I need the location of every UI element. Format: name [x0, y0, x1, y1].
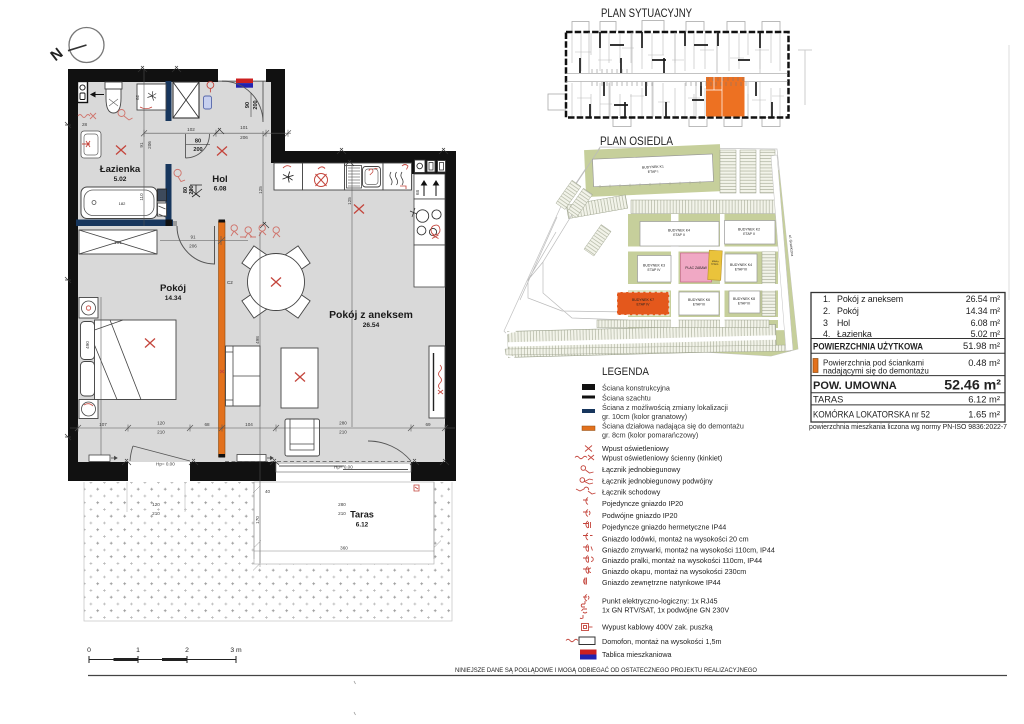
svg-text:Hol: Hol: [212, 174, 227, 185]
svg-text:PLAN OSIEDLA: PLAN OSIEDLA: [600, 134, 674, 148]
svg-text:1x GN RTV/SAT, 1x podwójne GN: 1x GN RTV/SAT, 1x podwójne GN 230V: [602, 606, 729, 615]
svg-text:0: 0: [87, 647, 91, 654]
svg-text:BUDYNEK K8: BUDYNEK K8: [733, 297, 755, 301]
svg-text:210: 210: [338, 511, 346, 516]
svg-text:182: 182: [119, 201, 126, 206]
svg-text:Wypust kablowy 400V zak. puszk: Wypust kablowy 400V zak. puszką: [602, 623, 713, 632]
svg-text:51.98 m²: 51.98 m²: [963, 340, 1000, 351]
svg-text:90: 90: [245, 102, 251, 108]
svg-text:ETAP I: ETAP I: [648, 170, 659, 174]
svg-text:TARAS: TARAS: [813, 395, 843, 405]
svg-text:Pojedyncze gniazdo hermetyczne: Pojedyncze gniazdo hermetyczne IP44: [602, 523, 726, 532]
svg-text:Gniazdo zmywarki, montaż na wy: Gniazdo zmywarki, montaż na wysokości 11…: [602, 546, 775, 555]
svg-text:ETAP IV: ETAP IV: [648, 268, 662, 272]
svg-text:125: 125: [258, 186, 263, 194]
svg-text:206: 206: [240, 135, 248, 140]
svg-text:120: 120: [157, 421, 165, 426]
svg-text:Tablica mieszkaniowa: Tablica mieszkaniowa: [602, 650, 672, 659]
svg-text:191: 191: [114, 240, 122, 245]
svg-text:Pojedyncze gniazdo IP20: Pojedyncze gniazdo IP20: [602, 499, 683, 508]
svg-text:210: 210: [157, 430, 165, 435]
svg-text:104: 104: [245, 422, 253, 427]
svg-text:91: 91: [139, 142, 144, 148]
svg-text:Wpust oświetleniowy ścienny (k: Wpust oświetleniowy ścienny (kinkiet): [602, 454, 722, 463]
svg-text:210: 210: [339, 430, 347, 435]
svg-text:BUDYNEK K7: BUDYNEK K7: [632, 298, 654, 302]
svg-text:206: 206: [147, 141, 152, 149]
svg-text:Domofon, montaż na wysokości 1: Domofon, montaż na wysokości 1,5m: [602, 637, 721, 646]
svg-text:1.65 m²: 1.65 m²: [968, 409, 1000, 420]
svg-text:125: 125: [347, 197, 352, 205]
svg-text:Hol: Hol: [837, 318, 850, 328]
svg-text:ETAP III: ETAP III: [735, 268, 748, 272]
svg-text:NINIEJSZE DANE SĄ POGLĄDOWE I: NINIEJSZE DANE SĄ POGLĄDOWE I MOGĄ ODBIE…: [455, 665, 757, 674]
svg-text:102: 102: [187, 127, 195, 132]
svg-text:POWIERZCHNIA UŻYTKOWA: POWIERZCHNIA UŻYTKOWA: [813, 342, 923, 353]
svg-text:200: 200: [193, 147, 202, 153]
svg-text:52.46 m²: 52.46 m²: [944, 378, 1001, 394]
svg-text:68: 68: [415, 189, 420, 195]
svg-text:4.: 4.: [823, 329, 830, 339]
svg-text:110: 110: [139, 193, 144, 201]
svg-text:Ściana działowa nadająca się d: Ściana działowa nadająca się do demontaż…: [602, 422, 744, 431]
svg-text:Punkt elektryczno-logiczny: 1x: Punkt elektryczno-logiczny: 1x RJ45: [602, 597, 717, 606]
svg-text:Gniazdo zewnętrzne natynkowe I: Gniazdo zewnętrzne natynkowe IP44: [602, 578, 721, 587]
svg-text:200: 200: [189, 185, 195, 194]
svg-text:26.54 m²: 26.54 m²: [966, 294, 1000, 304]
svg-text:Gniazdo lodówki, montaż na wys: Gniazdo lodówki, montaż na wysokości 20 …: [602, 535, 749, 544]
svg-text:490: 490: [85, 341, 90, 349]
svg-text:śmietn.: śmietn.: [711, 263, 719, 266]
svg-text:ETAP II: ETAP II: [743, 232, 755, 236]
svg-text:gr. 10cm (kolor granatowy): gr. 10cm (kolor granatowy): [602, 412, 687, 421]
svg-text:BUDYNEK K6: BUDYNEK K6: [688, 298, 710, 302]
svg-text:170: 170: [255, 516, 260, 524]
svg-text:5.02 m²: 5.02 m²: [971, 329, 1001, 339]
svg-text:Gniazdo pralki, montaż na wyso: Gniazdo pralki, montaż na wysokości 110c…: [602, 556, 762, 565]
svg-text:BUDYNEK K3: BUDYNEK K3: [643, 264, 665, 268]
svg-text:Ściana konstrukcyjna: Ściana konstrukcyjna: [602, 384, 670, 393]
svg-text:80: 80: [195, 139, 201, 145]
svg-text:BUDYNEK K4: BUDYNEK K4: [730, 263, 752, 267]
svg-text:3: 3: [823, 318, 828, 328]
svg-text:360: 360: [340, 546, 348, 551]
svg-text:Ściana z możliwością zmiany lo: Ściana z możliwością zmiany lokalizacji: [602, 403, 728, 412]
svg-text:Łazienka: Łazienka: [100, 164, 141, 175]
svg-text:6.12: 6.12: [356, 522, 369, 529]
svg-text:BUDYNEK K4: BUDYNEK K4: [668, 229, 690, 233]
svg-text:101: 101: [240, 125, 248, 130]
svg-text:Łazienka: Łazienka: [837, 329, 872, 339]
svg-text:ETAP III: ETAP III: [738, 302, 751, 306]
svg-text:1: 1: [136, 647, 140, 654]
svg-text:PLAC ZABAW: PLAC ZABAW: [685, 266, 707, 270]
svg-text:6.12 m²: 6.12 m²: [968, 394, 1000, 405]
svg-text:0.48 m²: 0.48 m²: [968, 357, 1000, 368]
svg-text:206: 206: [189, 244, 197, 249]
svg-text:28: 28: [82, 122, 88, 127]
svg-text:120: 120: [152, 502, 160, 507]
svg-text:26.54: 26.54: [363, 322, 380, 329]
svg-text:Pokój z aneksem: Pokój z aneksem: [329, 310, 413, 321]
svg-text:Łącznik jednobiegunowy: Łącznik jednobiegunowy: [602, 465, 681, 474]
svg-text:LEGENDA: LEGENDA: [602, 366, 649, 378]
svg-text:Taras: Taras: [350, 510, 374, 520]
svg-text:ETAP II: ETAP II: [673, 233, 685, 237]
svg-text:200: 200: [253, 100, 259, 109]
svg-text:14.34 m²: 14.34 m²: [966, 306, 1000, 316]
svg-text:Ściana szachtu: Ściana szachtu: [602, 394, 651, 403]
svg-text:Podwójne gniazdo IP20: Podwójne gniazdo IP20: [602, 511, 678, 520]
svg-text:Gniazdo okapu, montaż na wysok: Gniazdo okapu, montaż na wysokości 230cm: [602, 567, 746, 576]
svg-text:5.02: 5.02: [114, 176, 127, 183]
svg-text:2.: 2.: [823, 306, 830, 316]
svg-text:POW. UMOWNA: POW. UMOWNA: [813, 380, 897, 392]
svg-text:Łącznik schodowy: Łącznik schodowy: [602, 488, 661, 497]
svg-text:gr. 8cm (kolor pomarańczowy): gr. 8cm (kolor pomarańczowy): [602, 431, 698, 440]
svg-text:Hp= 0.00: Hp= 0.00: [334, 465, 353, 470]
svg-text:6.08: 6.08: [214, 186, 227, 193]
svg-text:nadającymi się do demontażu: nadającymi się do demontażu: [823, 367, 929, 376]
svg-text:91: 91: [190, 235, 196, 240]
svg-text:40: 40: [265, 489, 271, 494]
svg-text:Pokój z aneksem: Pokój z aneksem: [837, 294, 903, 304]
svg-text:powierzchnia mieszkania liczon: powierzchnia mieszkania liczona wg normy…: [809, 422, 1007, 431]
svg-text:ETAP IV: ETAP IV: [637, 303, 651, 307]
svg-text:69: 69: [425, 422, 431, 427]
svg-text:68: 68: [204, 422, 210, 427]
svg-text:Łącznik jednobiegunowy podwójn: Łącznik jednobiegunowy podwójny: [602, 477, 713, 486]
svg-text:Pokój: Pokój: [160, 283, 186, 294]
svg-text:280: 280: [338, 502, 346, 507]
svg-text:KOMÓRKA LOKATORSKA nr 52: KOMÓRKA LOKATORSKA nr 52: [813, 410, 930, 420]
svg-text:Pokój: Pokój: [837, 306, 859, 316]
svg-text:3 m: 3 m: [230, 647, 242, 654]
svg-text:Wpust oświetleniowy: Wpust oświetleniowy: [602, 444, 669, 453]
svg-text:1.: 1.: [823, 294, 830, 304]
svg-text:62: 62: [135, 94, 140, 100]
svg-text:C2: C2: [227, 280, 233, 285]
svg-text:498: 498: [255, 336, 260, 344]
svg-text:BUDYNEK K2: BUDYNEK K2: [738, 228, 760, 232]
svg-text:Hp= 0.00: Hp= 0.00: [156, 462, 175, 467]
svg-text:2: 2: [185, 647, 189, 654]
svg-text:6.08 m²: 6.08 m²: [971, 318, 1001, 328]
svg-text:210: 210: [152, 511, 160, 516]
svg-text:107: 107: [99, 422, 107, 427]
svg-text:ETAP III: ETAP III: [693, 303, 706, 307]
svg-text:PLAN SYTUACYJNY: PLAN SYTUACYJNY: [601, 6, 692, 20]
svg-text:14.34: 14.34: [165, 295, 182, 302]
svg-text:280: 280: [339, 421, 347, 426]
